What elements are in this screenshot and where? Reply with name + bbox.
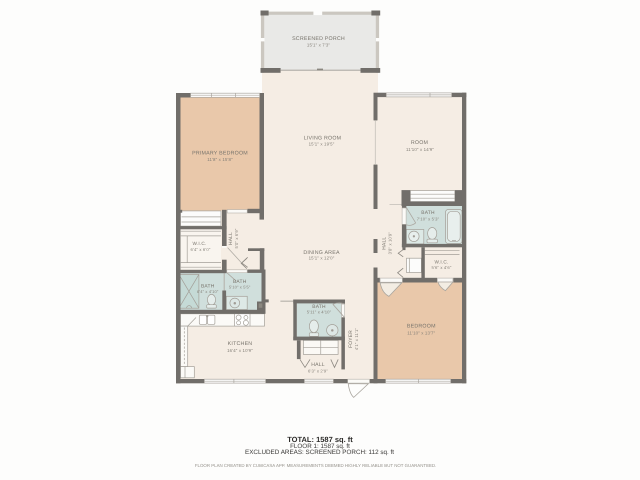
- svg-text:7'10" x 5'3": 7'10" x 5'3": [417, 217, 440, 222]
- svg-text:5'10" x 5'5": 5'10" x 5'5": [229, 284, 251, 289]
- svg-text:SCREENED PORCH: SCREENED PORCH: [292, 36, 345, 42]
- svg-text:11'10" x 14'9": 11'10" x 14'9": [406, 147, 434, 152]
- svg-text:BEDROOM: BEDROOM: [407, 324, 436, 330]
- svg-text:15'1" x 19'5": 15'1" x 19'5": [309, 141, 335, 146]
- svg-text:4'1" x 11'1": 4'1" x 11'1": [354, 328, 359, 350]
- svg-text:EXCLUDED AREAS: SCREENED PORCH: EXCLUDED AREAS: SCREENED PORCH: 112 sq. …: [245, 449, 394, 456]
- svg-text:15'1" x 12'0": 15'1" x 12'0": [309, 256, 335, 261]
- svg-text:ROOM: ROOM: [411, 140, 428, 146]
- svg-text:6'4" x 6'0": 6'4" x 6'0": [191, 247, 211, 252]
- svg-text:16'4" x 10'9": 16'4" x 10'9": [227, 348, 253, 353]
- svg-text:5'11" x 4'10": 5'11" x 4'10": [307, 310, 332, 315]
- svg-text:PRIMARY BEDROOM: PRIMARY BEDROOM: [192, 150, 248, 156]
- svg-text:W.I.C.: W.I.C.: [193, 241, 207, 246]
- svg-text:HALL: HALL: [311, 362, 325, 368]
- svg-text:HALL: HALL: [382, 237, 388, 250]
- svg-text:6'3" x 2'9": 6'3" x 2'9": [308, 368, 328, 373]
- svg-text:11'10" x 13'7": 11'10" x 13'7": [407, 330, 435, 335]
- svg-text:15'1" x 7'3": 15'1" x 7'3": [307, 42, 331, 47]
- svg-text:BATH: BATH: [421, 210, 435, 216]
- svg-text:FOYER: FOYER: [348, 330, 354, 348]
- svg-text:3'8" x 10'9": 3'8" x 10'9": [388, 232, 393, 255]
- svg-text:5'0" x 6'9": 5'0" x 6'9": [234, 228, 239, 248]
- svg-text:FLOOR PLAN CREATED BY CUBICASA: FLOOR PLAN CREATED BY CUBICASA APP. MEAS…: [195, 463, 436, 468]
- svg-text:5'6" x 4'6": 5'6" x 4'6": [432, 265, 452, 270]
- svg-text:KITCHEN: KITCHEN: [228, 341, 253, 347]
- svg-text:11'8" x 15'8": 11'8" x 15'8": [207, 157, 233, 162]
- svg-text:6'4" x 4'10": 6'4" x 4'10": [197, 289, 219, 294]
- svg-text:W.I.C.: W.I.C.: [435, 260, 449, 265]
